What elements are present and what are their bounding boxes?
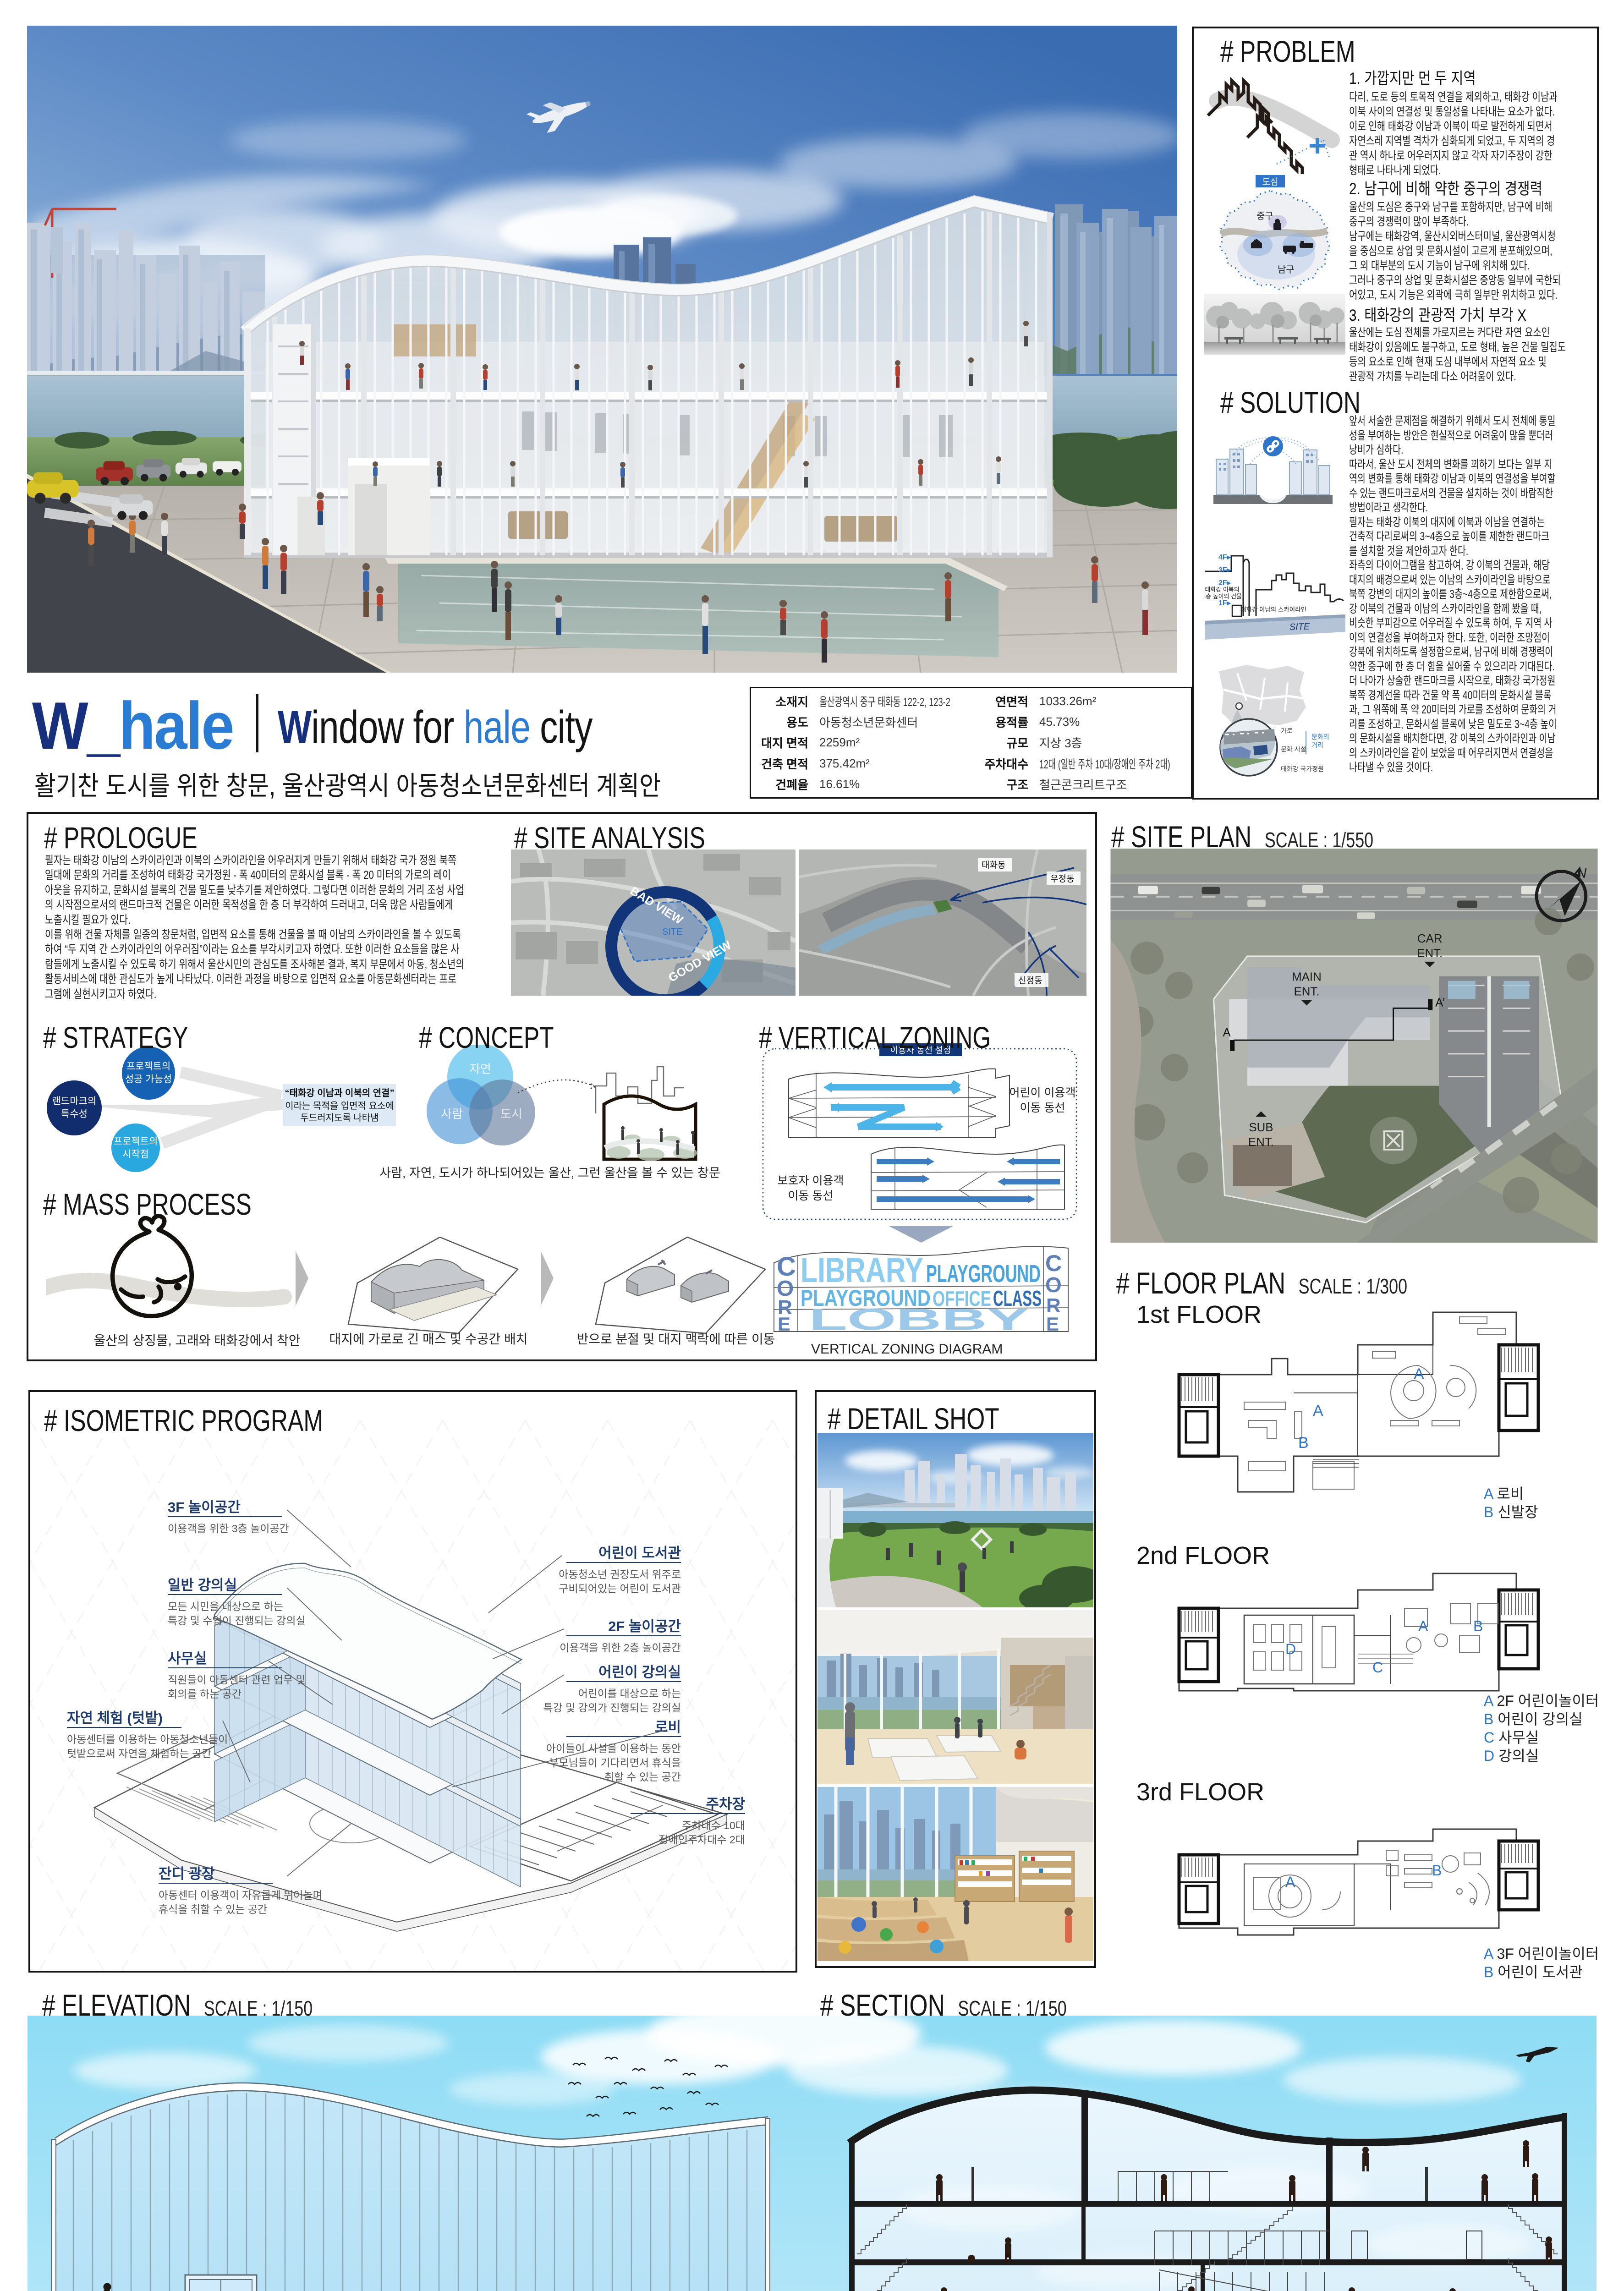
svg-text:도심: 도심 bbox=[1262, 177, 1278, 187]
svg-text:A’: A’ bbox=[1435, 996, 1445, 1009]
svg-text:E: E bbox=[1046, 1313, 1059, 1335]
svg-text:프로젝트의: 프로젝트의 bbox=[114, 1136, 158, 1147]
svg-text:남구: 남구 bbox=[1278, 264, 1295, 275]
svg-text:3F 놀이공간: 3F 놀이공간 bbox=[168, 1499, 241, 1515]
svg-text:사람: 사람 bbox=[441, 1107, 463, 1121]
svg-text:회의를 하는 공간: 회의를 하는 공간 bbox=[168, 1688, 241, 1700]
svg-text:태화강 이북의: 태화강 이북의 bbox=[1205, 586, 1239, 593]
svg-text:D: D bbox=[1285, 1641, 1296, 1657]
svg-text:직원들이 아동센터 관련 업무 및: 직원들이 아동센터 관련 업무 및 bbox=[168, 1674, 306, 1686]
svg-text:휴식을 취할 수 있는 공간: 휴식을 취할 수 있는 공간 bbox=[159, 1903, 267, 1915]
svg-text:모든 시민을 대상으로 하는: 모든 시민을 대상으로 하는 bbox=[168, 1600, 283, 1612]
svg-text:자연 체험 (텃밭): 자연 체험 (텃밭) bbox=[67, 1710, 163, 1726]
svg-text:울산의 상징물, 고래와 태화강에서 착안: 울산의 상징물, 고래와 태화강에서 착안 bbox=[93, 1333, 300, 1348]
svg-text:랜드마크의: 랜드마크의 bbox=[52, 1096, 97, 1107]
svg-text:이용객을 위한 3층 놀이공간: 이용객을 위한 3층 놀이공간 bbox=[168, 1523, 289, 1535]
svg-text:문화의: 문화의 bbox=[1311, 733, 1329, 740]
svg-text:자연: 자연 bbox=[469, 1062, 491, 1076]
svg-text:중구: 중구 bbox=[1256, 211, 1273, 221]
svg-text:성공 가능성: 성공 가능성 bbox=[125, 1074, 172, 1085]
svg-text:ENT.: ENT. bbox=[1417, 947, 1443, 960]
svg-text:ENT.: ENT. bbox=[1248, 1136, 1274, 1149]
svg-text:사무실: 사무실 bbox=[168, 1650, 207, 1666]
svg-text:C: C bbox=[1372, 1659, 1383, 1676]
svg-text:특수성: 특수성 bbox=[61, 1109, 88, 1119]
svg-text:4F▸: 4F▸ bbox=[1218, 554, 1231, 561]
svg-text:ENT.: ENT. bbox=[1294, 986, 1319, 998]
svg-text:텃밭으로써 자연을 체험하는 공간: 텃밭으로써 자연을 체험하는 공간 bbox=[67, 1748, 211, 1759]
svg-text:SITE: SITE bbox=[1289, 621, 1310, 632]
svg-text:SUB: SUB bbox=[1249, 1121, 1273, 1134]
svg-text:4층 높이의 건물: 4층 높이의 건물 bbox=[1205, 593, 1242, 600]
svg-text:반으로 분절 및 대지 맥락에 따른 이동: 반으로 분절 및 대지 맥락에 따른 이동 bbox=[576, 1332, 775, 1346]
svg-text:B: B bbox=[1298, 1434, 1309, 1452]
svg-text:문화 시설: 문화 시설 bbox=[1281, 745, 1306, 753]
svg-text:두드러지도록 나타냄: 두드러지도록 나타냄 bbox=[300, 1113, 379, 1123]
svg-text:로비: 로비 bbox=[655, 1719, 681, 1735]
svg-text:우정동: 우정동 bbox=[1050, 874, 1074, 884]
svg-text:프로젝트의: 프로젝트의 bbox=[126, 1061, 171, 1072]
svg-text:주차대수 10대: 주차대수 10대 bbox=[682, 1820, 745, 1831]
svg-text:신정동: 신정동 bbox=[1018, 976, 1042, 986]
svg-text:O: O bbox=[1045, 1273, 1062, 1297]
svg-text:A: A bbox=[1223, 1026, 1231, 1039]
svg-text:어린이 이용객: 어린이 이용객 bbox=[1010, 1086, 1076, 1099]
svg-text:A: A bbox=[1313, 1402, 1323, 1420]
svg-text:B: B bbox=[1473, 1618, 1483, 1634]
svg-text:태화강 국가정원: 태화강 국가정원 bbox=[1281, 765, 1324, 773]
svg-text:가로: 가로 bbox=[1281, 727, 1293, 734]
svg-text:도시: 도시 bbox=[500, 1107, 522, 1121]
svg-text:아동센터 이용객이 자유롭게 뛰어놀며: 아동센터 이용객이 자유롭게 뛰어놀며 bbox=[159, 1889, 323, 1901]
svg-text:어린이 강의실: 어린이 강의실 bbox=[598, 1664, 681, 1680]
svg-text:일반 강의실: 일반 강의실 bbox=[168, 1577, 237, 1593]
svg-text:대지에 가로로 긴 매스 및 수공간 배치: 대지에 가로로 긴 매스 및 수공간 배치 bbox=[329, 1332, 527, 1346]
svg-text:2F 놀이공간: 2F 놀이공간 bbox=[608, 1618, 681, 1634]
svg-text:A: A bbox=[1285, 1874, 1295, 1890]
svg-text:특강 및 강의가 진행되는 강의실: 특강 및 강의가 진행되는 강의실 bbox=[543, 1702, 681, 1714]
svg-text:SITE: SITE bbox=[662, 927, 682, 937]
svg-text:이동 동선: 이동 동선 bbox=[788, 1189, 834, 1202]
svg-text:아동청소년 권장도서 위주로: 아동청소년 권장도서 위주로 bbox=[559, 1568, 681, 1580]
svg-text:시작점: 시작점 bbox=[122, 1149, 149, 1160]
svg-text:A: A bbox=[1418, 1618, 1428, 1634]
svg-text:1F▸: 1F▸ bbox=[1218, 599, 1231, 607]
svg-text:특강 및 수업이 진행되는 강의실: 특강 및 수업이 진행되는 강의실 bbox=[168, 1615, 306, 1627]
svg-text:C: C bbox=[1045, 1250, 1062, 1276]
svg-text:주차장: 주차장 bbox=[706, 1796, 745, 1812]
svg-text:취할 수 있는 공간: 취할 수 있는 공간 bbox=[604, 1771, 681, 1783]
svg-text:이용객을 위한 2층 놀이공간: 이용객을 위한 2층 놀이공간 bbox=[560, 1642, 681, 1654]
svg-text:이동 동선: 이동 동선 bbox=[1020, 1102, 1065, 1114]
svg-text:거리: 거리 bbox=[1311, 741, 1323, 749]
svg-text:태화강 이남의 스카이라인: 태화강 이남의 스카이라인 bbox=[1240, 606, 1306, 613]
svg-text:CAR: CAR bbox=[1417, 932, 1443, 945]
svg-text:잔디 광장: 잔디 광장 bbox=[159, 1866, 215, 1882]
svg-text:부모님들이 기다리면서 휴식을: 부모님들이 기다리면서 휴식을 bbox=[549, 1757, 681, 1769]
svg-text:3F▸: 3F▸ bbox=[1218, 566, 1231, 574]
svg-text:태화동: 태화동 bbox=[982, 860, 1005, 870]
svg-text:장애인주차대수 2대: 장애인주차대수 2대 bbox=[659, 1834, 745, 1846]
svg-text:MAIN: MAIN bbox=[1292, 971, 1322, 984]
svg-text:이라는 목적을 입면적 요소에: 이라는 목적을 입면적 요소에 bbox=[285, 1101, 394, 1111]
svg-text:N: N bbox=[1577, 866, 1587, 881]
svg-text:“태화강 이남과 이북의 연결”: “태화강 이남과 이북의 연결” bbox=[285, 1088, 394, 1098]
svg-text:B: B bbox=[1432, 1862, 1442, 1879]
svg-text:어린이를 대상으로 하는: 어린이를 대상으로 하는 bbox=[578, 1688, 681, 1699]
svg-text:아동센터를 이용하는 아동청소년들이: 아동센터를 이용하는 아동청소년들이 bbox=[67, 1733, 228, 1745]
svg-text:A: A bbox=[1414, 1365, 1424, 1383]
svg-text:어린이 도서관: 어린이 도서관 bbox=[598, 1545, 681, 1561]
svg-text:보호자 이용객: 보호자 이용객 bbox=[778, 1174, 844, 1187]
svg-text:구비되어있는 어린이 도서관: 구비되어있는 어린이 도서관 bbox=[559, 1583, 681, 1595]
